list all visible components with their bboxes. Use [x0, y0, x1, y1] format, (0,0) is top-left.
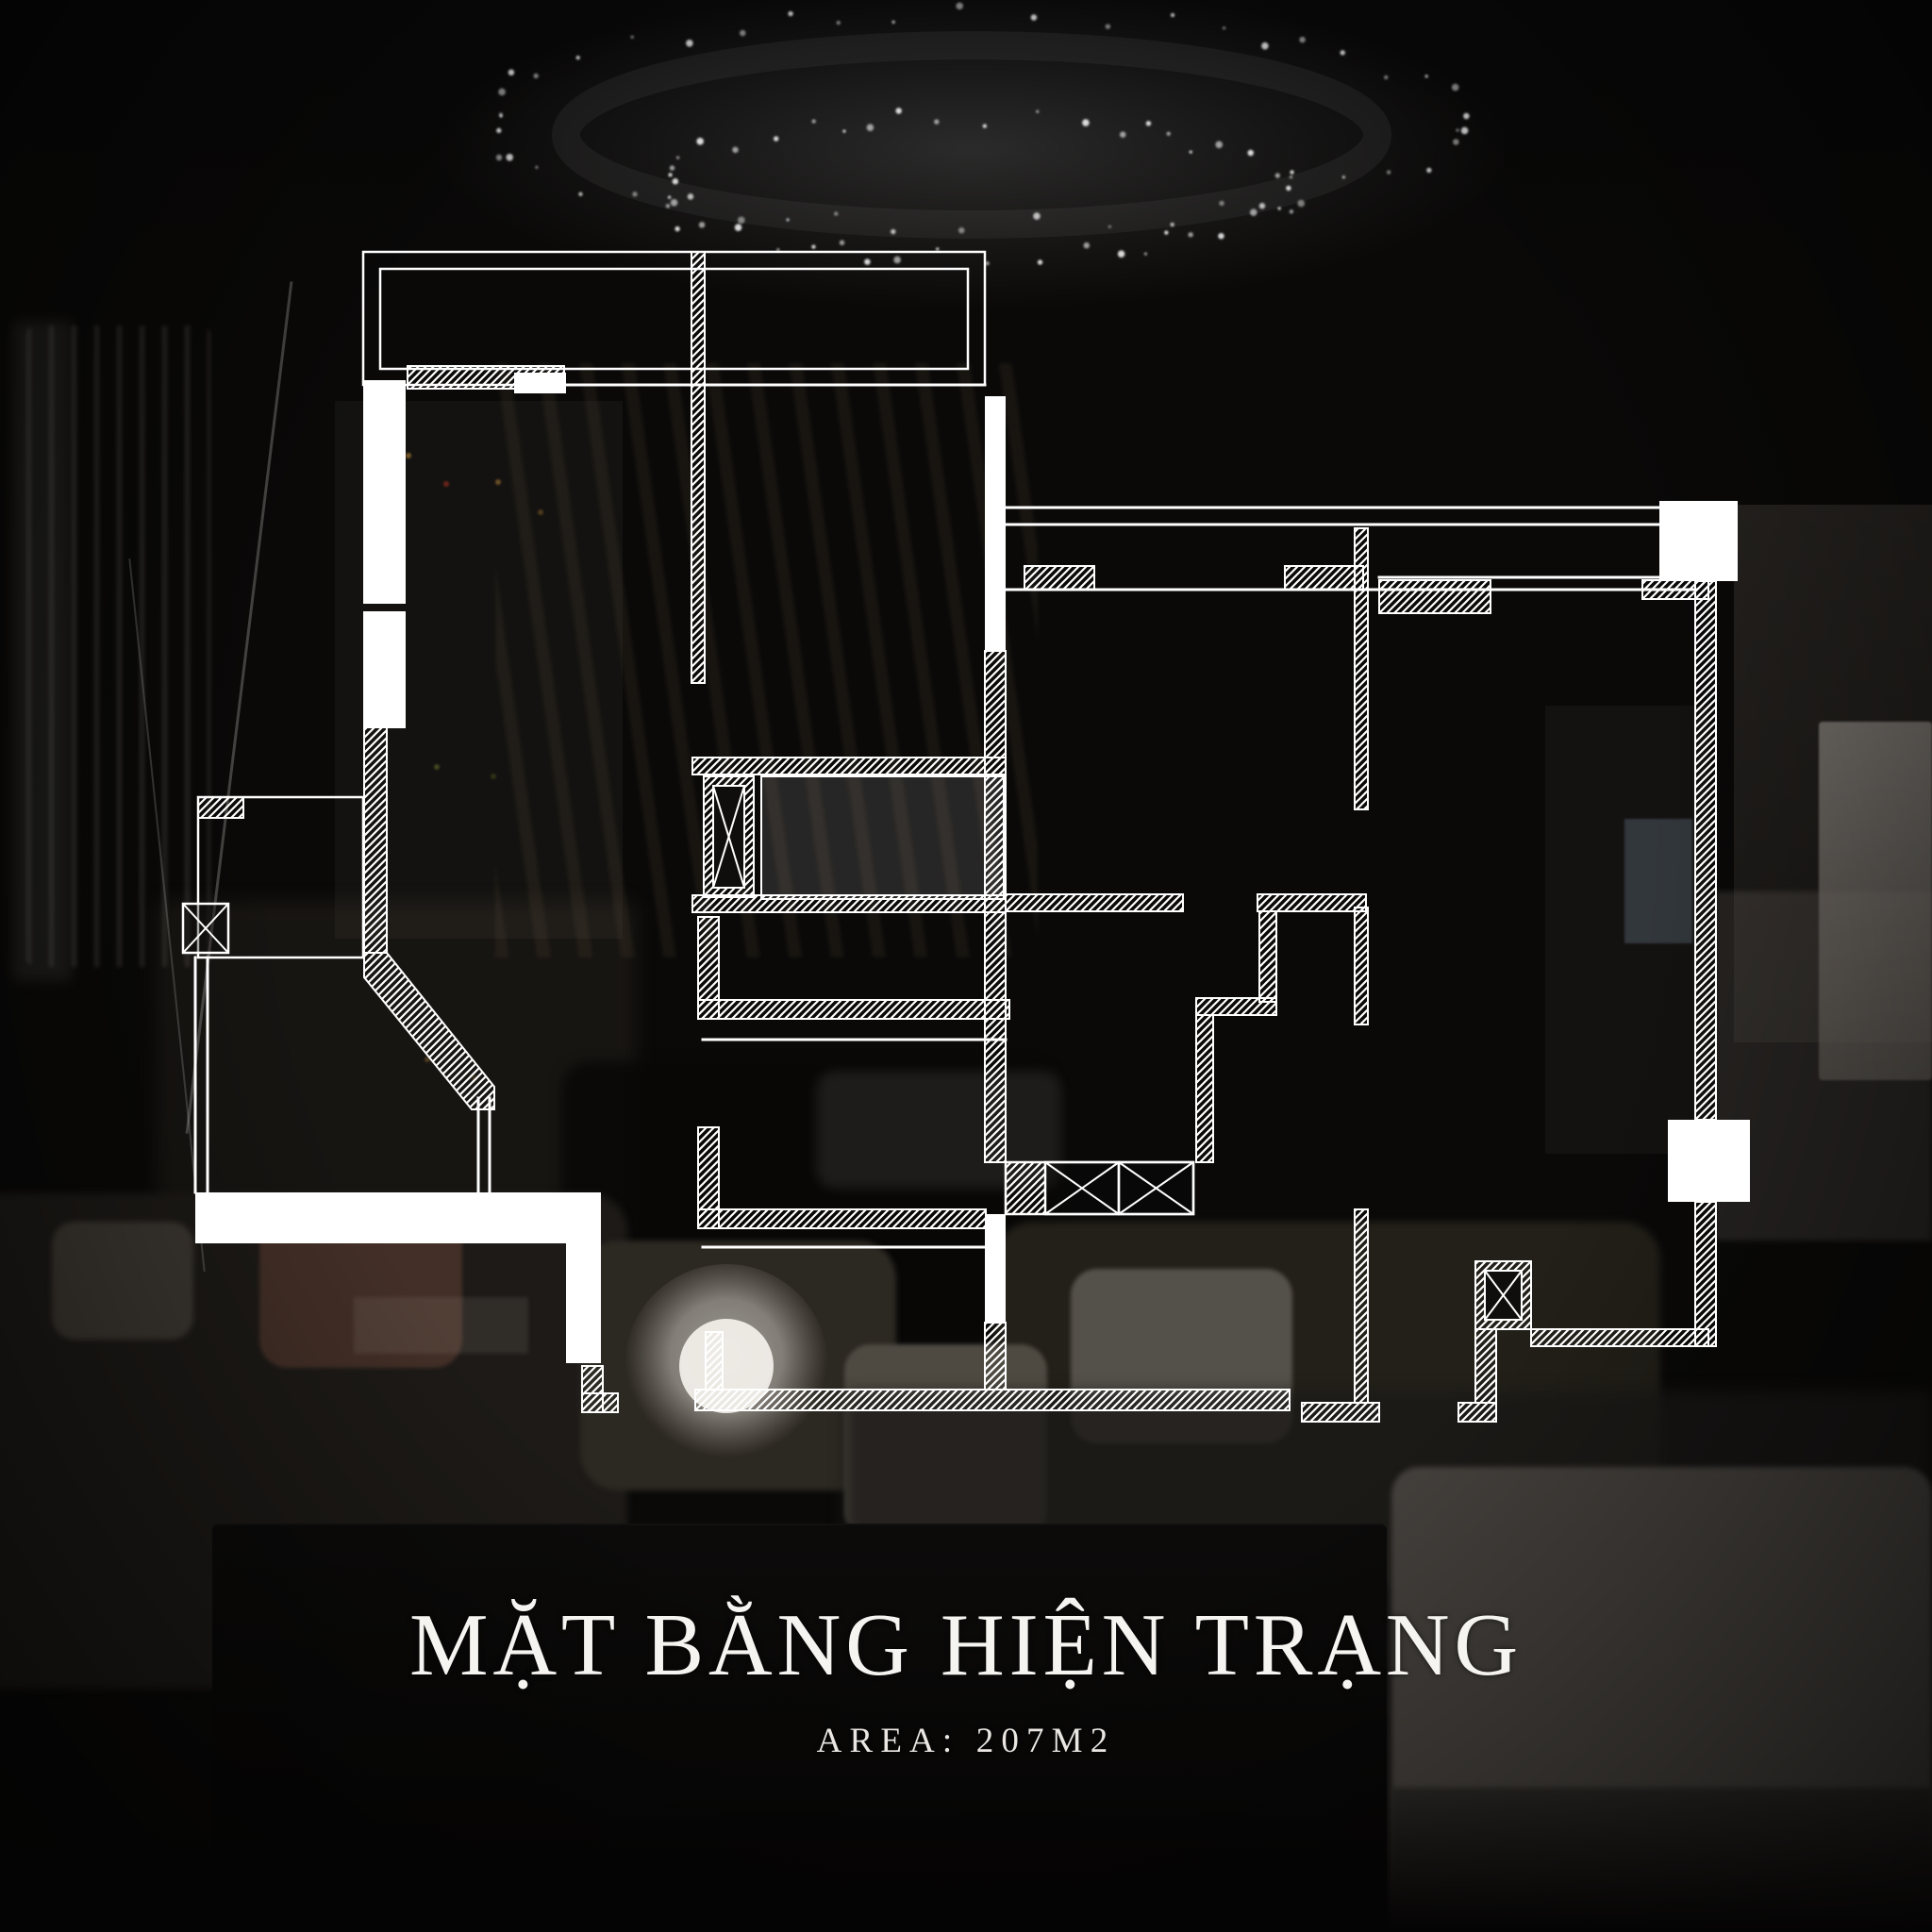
caption-block: MẶT BẰNG HIỆN TRẠNG AREA: 207M2 — [0, 1594, 1932, 1761]
poster-canvas: MẶT BẰNG HIỆN TRẠNG AREA: 207M2 — [0, 0, 1932, 1932]
sphere-lamp-glow — [625, 1264, 828, 1468]
chandelier-glow — [429, 0, 1514, 311]
wall-linework — [183, 252, 1750, 1422]
plan-title: MẶT BẰNG HIỆN TRẠNG — [0, 1594, 1932, 1696]
plan-area-label: AREA: 207M2 — [0, 1721, 1932, 1761]
